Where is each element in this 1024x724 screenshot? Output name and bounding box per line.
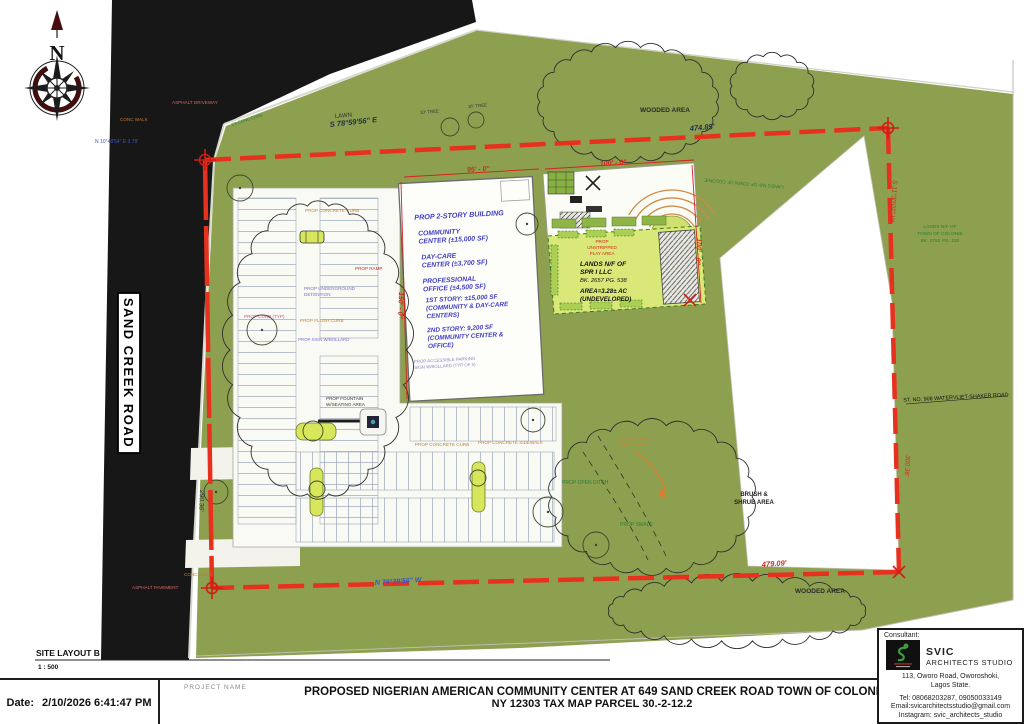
label-conc-walk-top: CONC WALK bbox=[120, 117, 149, 122]
consultant-address-2: Lagos State. bbox=[879, 682, 1022, 691]
label-brush-1: BRUSH & bbox=[740, 492, 768, 498]
label-conc-walk-bottom: CONC WALK bbox=[184, 572, 213, 577]
label-wooded-top: WOODED AREA bbox=[640, 107, 690, 114]
date-label: Date: bbox=[7, 697, 35, 709]
label-prop-sidewalk: PROP CONCRETE SIDEWALK bbox=[478, 440, 544, 445]
parcel-play-label-3: PLAY AREA bbox=[590, 251, 616, 256]
label-connect-swale-1: PROP CONNECT TO bbox=[620, 436, 665, 441]
consultant-instagram: Instagram: svic_architects_studio bbox=[879, 711, 1022, 720]
dim-bldg-depth: 150' - 0" bbox=[396, 292, 404, 320]
label-prop-curb-typ: PROP CURB (TYP) bbox=[244, 314, 285, 319]
label-connect-swale-2: EXIST SWALE bbox=[620, 442, 650, 447]
label-fountain-2: W/SEATING AREA bbox=[326, 402, 366, 407]
label-flush-curb: PROP FLUSH CURB bbox=[300, 318, 344, 323]
parked-car bbox=[300, 231, 324, 243]
dist-bottom: 479.09' bbox=[761, 558, 788, 569]
proposed-building: PROP 2-STORY BUILDING COMMUNITY CENTER (… bbox=[398, 177, 543, 402]
label-lands-town-1: LANDS N/F OF bbox=[923, 224, 956, 230]
date-cell: Date: 2/10/2026 6:41:47 PM bbox=[0, 680, 160, 724]
dim-play-depth: 100' - 0" bbox=[694, 238, 702, 266]
compass-rose-icon bbox=[24, 55, 90, 121]
spr-parcel: PROP UNSTRIPPED PLAY AREA LANDS N/F OF S… bbox=[548, 226, 706, 314]
parcel-play-label-2: UNSTRIPPED bbox=[587, 245, 617, 250]
road-name-label: SAND CREEK ROAD bbox=[121, 298, 136, 448]
label-detention-2: DETENTION bbox=[304, 292, 331, 297]
dist-left: 290.36' bbox=[197, 489, 205, 512]
date-value: 2/10/2026 6:41:47 PM bbox=[42, 697, 151, 709]
project-name-label: PROJECT NAME bbox=[184, 684, 247, 691]
label-detention-1: PROP UNDERGROUND bbox=[304, 286, 356, 291]
parcel-owner-1: LANDS N/F OF bbox=[580, 261, 627, 268]
consultant-firm-subname: ARCHITECTS STUDIO bbox=[926, 658, 1013, 667]
label-asphalt-driveway: ASPHALT DRIVEWAY bbox=[172, 100, 218, 105]
consultant-label: Consultant: bbox=[879, 630, 1022, 639]
label-sign-bollard: PROP SIGN W/BOLLARD bbox=[298, 337, 349, 342]
parcel-owner-2: SPR I LLC bbox=[580, 269, 612, 276]
consultant-tel: Tel: 08068203287, 09050033149 bbox=[879, 695, 1022, 702]
parcel-stairs-hatch bbox=[659, 230, 700, 304]
bldg-line-12: OFFICE) bbox=[428, 342, 454, 350]
consultant-email: Email:svicarchitectsstudio@gmail.com bbox=[879, 702, 1022, 711]
north-compass: N bbox=[24, 10, 90, 121]
parcel-play-label-1: PROP bbox=[595, 239, 608, 244]
label-asphalt-pavement: ASPHALT PAVEMENT bbox=[132, 585, 179, 590]
parcel-book: BK. 2657 PG. 538 bbox=[580, 278, 628, 284]
layout-name: SITE LAYOUT B bbox=[36, 648, 100, 658]
label-brush-2: SHRUB AREA bbox=[734, 500, 774, 506]
label-fountain-1: PROP FOUNTAIN bbox=[326, 396, 363, 401]
parcel-status: (UNDEVELOPED) bbox=[580, 296, 631, 303]
label-wooded-bottom: WOODED AREA bbox=[795, 588, 845, 595]
label-lands-town-3: BK. 2792 PG. 220 bbox=[921, 238, 960, 244]
consultant-box: Consultant: SVIC ARCHITECTS STUDIO 113, … bbox=[877, 628, 1024, 724]
parcel-area: AREA=3.28± AC bbox=[579, 288, 628, 295]
label-prop-curb-1: PROP CONCRETE CURB bbox=[305, 208, 359, 213]
label-prop-curb-2: PROP CONCRETE CURB bbox=[415, 442, 469, 447]
site-plan-sheet: PROP UNSTRIPPED PLAY AREA LANDS N/F OF S… bbox=[0, 0, 1024, 724]
layout-scale: 1 : 500 bbox=[38, 664, 59, 671]
dim-bldg-width: 95' - 0" bbox=[467, 166, 491, 174]
north-arrow-icon bbox=[51, 10, 63, 30]
label-prop-ditch: PROP OPEN DITCH bbox=[562, 480, 609, 486]
label-lands-town-2: TOWN OF COLONIE bbox=[917, 231, 962, 237]
site-plan-drawing: PROP UNSTRIPPED PLAY AREA LANDS N/F OF S… bbox=[0, 0, 1024, 678]
svic-logo-icon bbox=[886, 640, 920, 672]
road-name-plate: SAND CREEK ROAD bbox=[118, 293, 140, 453]
title-block: Date: 2/10/2026 6:41:47 PM PROJECT NAME … bbox=[0, 678, 1024, 724]
bearing-jog: N 10°48'54" E 3.78' bbox=[95, 139, 138, 145]
label-prop-swale: PROP SWALE bbox=[620, 522, 653, 528]
consultant-address-1: 113, Oworo Road, Oworoshoki, bbox=[879, 673, 1022, 682]
consultant-firm-name: SVIC bbox=[926, 646, 1013, 658]
label-prop-ramp: PROP RAMP bbox=[355, 266, 382, 271]
